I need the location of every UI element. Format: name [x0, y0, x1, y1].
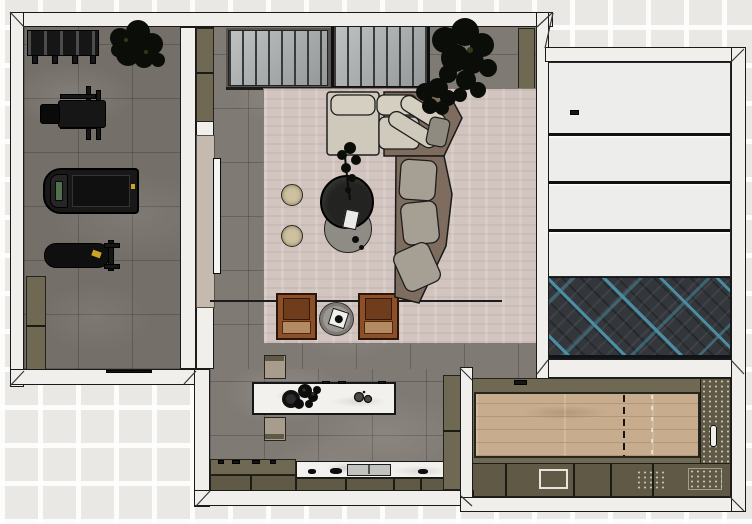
band-separator: [549, 133, 730, 136]
dumbbell-rack: [27, 30, 99, 56]
slat-panel-framed: [331, 23, 430, 89]
wall-top: [10, 12, 553, 27]
island-stool: [264, 417, 286, 441]
wall-living-east: [536, 12, 549, 379]
panel-handle: [570, 110, 579, 115]
tv-panel: [213, 158, 221, 274]
cabinet-divider: [610, 464, 612, 496]
wall-gym-east: [180, 27, 196, 369]
island-stool: [264, 355, 286, 379]
bench-leg: [104, 264, 120, 269]
wall-lane-west: [460, 367, 473, 507]
armchair-back: [283, 298, 310, 320]
table-decor: [352, 236, 359, 243]
treadmill-belt: [72, 175, 130, 207]
armchair-cushion: [364, 321, 393, 334]
rack-leg: [90, 55, 96, 64]
bench-leg: [104, 243, 120, 248]
cabinet-divider: [573, 464, 575, 496]
gym-cabinet-divider: [26, 325, 46, 327]
counter-decor: [330, 468, 342, 474]
leather-armchair: [358, 293, 399, 340]
threshold-line: [106, 370, 152, 373]
rack-leg: [32, 55, 38, 64]
armchair-cushion: [282, 321, 311, 334]
wall-mid-vertical: [194, 369, 210, 507]
counter-decor: [418, 469, 428, 474]
leather-armchair: [276, 293, 317, 340]
wall-kitchen-bottom: [194, 490, 474, 506]
hob-burner: [218, 460, 224, 464]
lane-end-cabinet: [700, 378, 731, 464]
tall-cabinet: [443, 375, 461, 490]
step-line: [210, 300, 502, 302]
wall-gym-bottom: [10, 369, 198, 385]
slat-panel: [228, 30, 328, 86]
lane-cabinet-handle: [514, 380, 527, 385]
wood-lane: [474, 392, 700, 458]
wall-right-top: [545, 47, 746, 62]
banded-panels: [548, 62, 731, 277]
floor-plan-canvas: [0, 0, 752, 524]
wall-right-east: [731, 47, 746, 512]
nw-cabinet: [196, 28, 214, 122]
rack-leg: [52, 55, 58, 64]
sideboard-decor: [636, 470, 664, 490]
cabinet-divider: [505, 464, 507, 496]
band-separator: [549, 181, 730, 184]
kitchen-sink: [347, 464, 391, 476]
kitchen-island: [252, 382, 396, 415]
sink-divider: [368, 465, 370, 474]
tray-object: [334, 314, 344, 324]
island-pull: [322, 381, 330, 384]
nw-cabinet-divider: [196, 72, 214, 74]
weight-machine-crossbar: [60, 94, 96, 99]
herringbone-floor: [548, 277, 731, 359]
weight-stack: [40, 104, 60, 124]
island-pull: [378, 381, 386, 384]
round-pouf: [281, 225, 303, 247]
armchair-back: [365, 298, 392, 320]
stool-band: [265, 434, 284, 439]
island-pull: [338, 381, 346, 384]
band-separator: [549, 229, 730, 232]
rack-leg: [72, 55, 78, 64]
treadmill-screen: [55, 181, 63, 201]
wall-lane-bottom: [460, 497, 746, 512]
cabinet-divider: [250, 476, 252, 491]
treadmill-marker: [131, 184, 135, 189]
stool-band: [265, 356, 284, 361]
weight-machine-body: [58, 100, 106, 128]
sideboard-tray: [539, 469, 568, 489]
lane-pin: [710, 425, 717, 447]
table-decor: [359, 245, 364, 250]
hob-burner: [270, 460, 276, 464]
hob-burner: [232, 460, 240, 464]
tall-cabinet-divider: [443, 430, 461, 432]
wall-left: [10, 12, 24, 387]
wall-right-mid: [548, 359, 732, 378]
herringbone-edge: [548, 355, 731, 358]
round-pouf: [281, 184, 303, 206]
hob-burner: [252, 460, 260, 464]
counter-decor: [308, 469, 316, 474]
sideboard-decor: [688, 468, 722, 490]
